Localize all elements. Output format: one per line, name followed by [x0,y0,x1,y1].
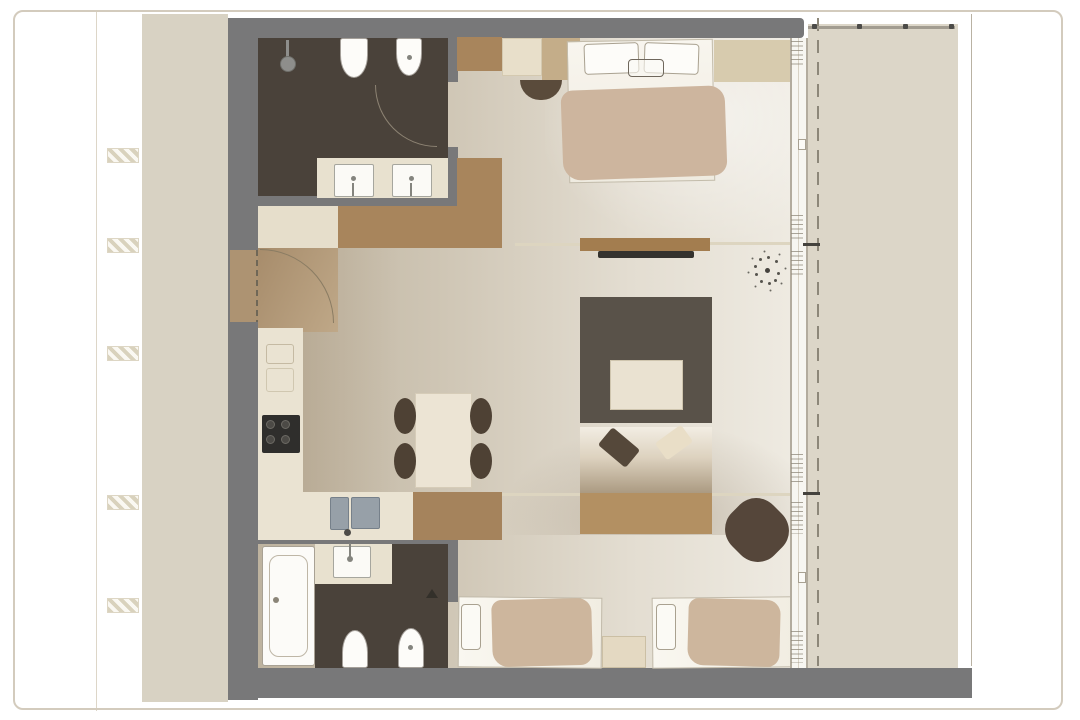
floor-plan [0,0,1080,720]
drawing-frame [13,10,1063,710]
